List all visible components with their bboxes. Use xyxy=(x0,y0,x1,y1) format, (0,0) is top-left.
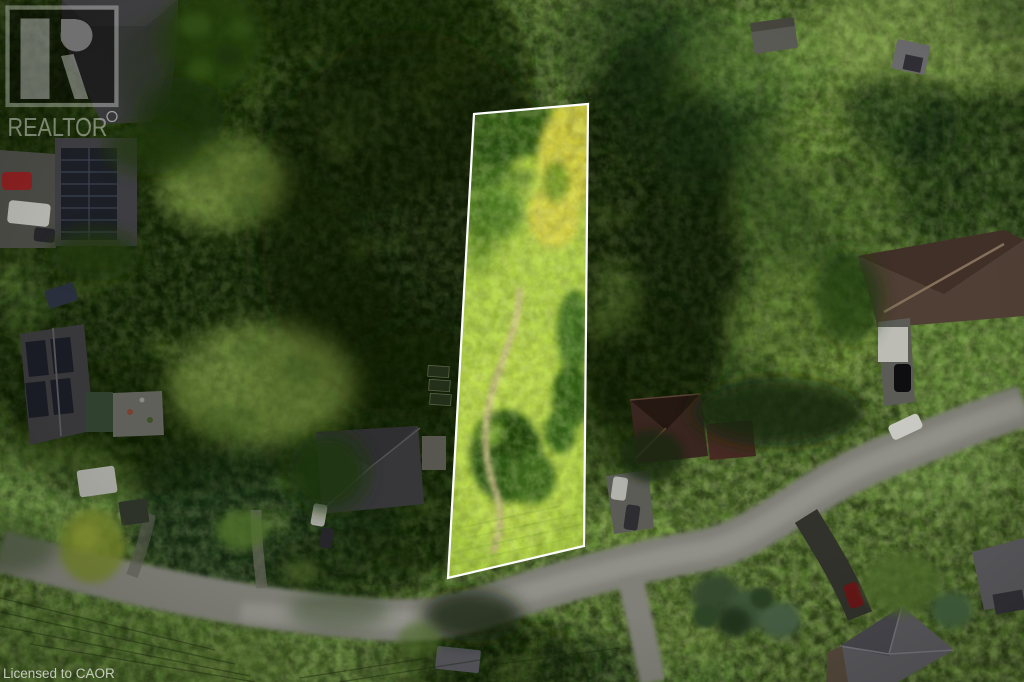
svg-text:Licensed to CAOR: Licensed to CAOR xyxy=(3,666,115,681)
svg-text:REALTOR: REALTOR xyxy=(8,112,108,142)
